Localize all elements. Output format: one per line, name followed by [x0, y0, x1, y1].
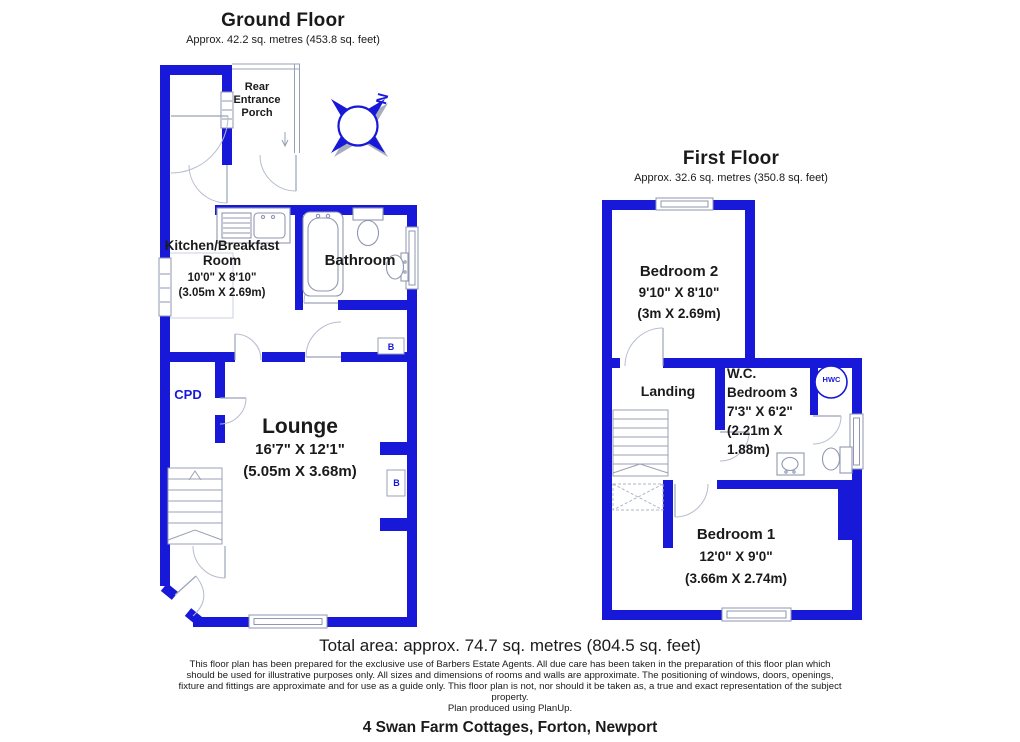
wc-line-5: 1.88m) — [727, 440, 822, 459]
first-floor-stairs — [613, 410, 668, 476]
property-address: 4 Swan Farm Cottages, Forton, Newport — [260, 719, 760, 737]
room-label-wc-bedroom3: W.C. Bedroom 3 7'3" X 6'2" (2.21m X 1.88… — [727, 364, 822, 459]
lounge-dims-imperial: 16'7" X 12'1" — [210, 439, 390, 461]
wc-line-3: 7'3" X 6'2" — [727, 402, 822, 421]
boiler-label-1: B — [378, 339, 404, 355]
lounge-name: Lounge — [210, 414, 390, 439]
total-area-text: Total area: approx. 74.7 sq. metres (804… — [260, 636, 760, 656]
wc-line-2: Bedroom 3 — [727, 383, 822, 402]
room-label-landing: Landing — [629, 381, 707, 402]
disclaimer-line-4: property. — [110, 692, 910, 703]
bedroom2-name: Bedroom 2 — [604, 261, 754, 282]
room-label-lounge: Lounge 16'7" X 12'1" (5.05m X 3.68m) — [210, 414, 390, 483]
cupboard-label: CPD — [166, 387, 210, 402]
kitchen-name-line1: Kitchen/Breakfast — [147, 238, 297, 253]
room-label-porch: Rear Entrance Porch — [215, 81, 299, 120]
plan-produced-text: Plan produced using PlanUp. — [110, 703, 910, 714]
ground-floor-area: Approx. 42.2 sq. metres (453.8 sq. feet) — [133, 34, 433, 46]
floor-plan-page: N Ground Floor Approx. 42.2 sq. metres (… — [0, 0, 1020, 742]
room-label-bathroom: Bathroom — [310, 250, 410, 271]
porch-line-2: Entrance — [215, 94, 299, 107]
porch-line-3: Porch — [215, 107, 299, 120]
room-label-bedroom2: Bedroom 2 9'10" X 8'10" (3m X 2.69m) — [604, 261, 754, 324]
kitchen-dims-imperial: 10'0" X 8'10" — [147, 271, 297, 286]
disclaimer-line-1: This floor plan has been prepared for th… — [110, 659, 910, 670]
porch-line-1: Rear — [215, 81, 299, 94]
toilet-ground — [353, 208, 383, 246]
bedroom1-dims-imperial: 12'0" X 9'0" — [660, 546, 812, 568]
wc-line-1: W.C. — [727, 364, 822, 383]
boiler-label-2: B — [387, 470, 406, 496]
disclaimer-line-2: should be used for illustrative purposes… — [110, 670, 910, 681]
room-label-kitchen: Kitchen/Breakfast Room 10'0" X 8'10" (3.… — [147, 238, 297, 301]
kitchen-dims-metric: (3.05m X 2.69m) — [147, 286, 297, 301]
disclaimer-line-3: fixture and fittings are approximate and… — [110, 681, 910, 692]
wc-line-4: (2.21m X — [727, 421, 822, 440]
stair-void — [613, 484, 663, 510]
ground-floor-title: Ground Floor — [133, 10, 433, 32]
room-label-bedroom1: Bedroom 1 12'0" X 9'0" (3.66m X 2.74m) — [660, 524, 812, 590]
bedroom1-name: Bedroom 1 — [660, 524, 812, 546]
compass-icon — [318, 84, 406, 172]
hwc-label: HWC — [816, 375, 847, 385]
bedroom2-dims-imperial: 9'10" X 8'10" — [604, 282, 754, 303]
toilet-first — [823, 447, 853, 473]
kitchen-name-line2: Room — [147, 253, 297, 268]
bedroom1-dims-metric: (3.66m X 2.74m) — [660, 568, 812, 590]
disclaimer: This floor plan has been prepared for th… — [110, 659, 910, 714]
first-floor-title: First Floor — [581, 148, 881, 170]
lounge-dims-metric: (5.05m X 3.68m) — [210, 461, 390, 483]
bedroom2-dims-metric: (3m X 2.69m) — [604, 303, 754, 324]
first-floor-area: Approx. 32.6 sq. metres (350.8 sq. feet) — [581, 172, 881, 184]
